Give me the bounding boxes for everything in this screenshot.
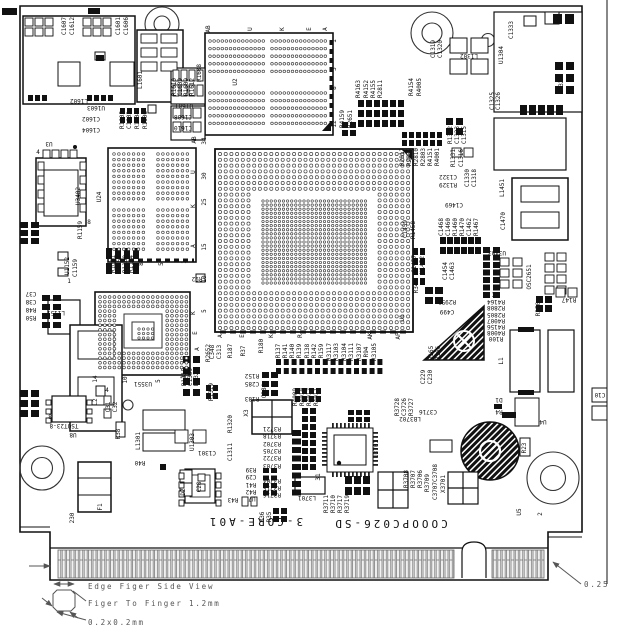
bga-ball <box>352 220 354 222</box>
bga-ball <box>295 212 297 214</box>
bga-ball <box>230 268 233 271</box>
bga-ball <box>181 248 184 251</box>
bga-ball <box>224 321 227 324</box>
bga-ball <box>275 122 278 125</box>
bga-ball <box>407 251 410 254</box>
bga-ball <box>258 47 261 50</box>
bga-ball <box>378 176 381 179</box>
bga-ball <box>348 241 350 243</box>
bga-ball <box>253 297 256 300</box>
pad <box>430 132 435 138</box>
bga-ball <box>307 278 309 280</box>
bga-ball <box>378 268 381 271</box>
bga-ball <box>338 187 341 190</box>
pad <box>292 456 301 462</box>
bga-ball <box>224 263 227 266</box>
bga-ball <box>321 297 324 300</box>
bga-ball <box>295 249 297 251</box>
bga-ball <box>185 305 188 308</box>
bga-ball <box>142 192 145 195</box>
bga-ball <box>151 300 154 303</box>
bga-ball <box>299 249 301 251</box>
bga-ball <box>295 261 297 263</box>
bga-ball <box>348 200 350 202</box>
ref-designator-label: R2953 <box>438 298 456 305</box>
bga-ball <box>127 300 130 303</box>
bga-ball <box>282 282 284 284</box>
bga-ball <box>344 245 346 247</box>
bga-ball <box>321 187 324 190</box>
ref-designator-label: L1 <box>498 357 505 365</box>
bga-ball <box>224 239 227 242</box>
bga-ball <box>161 366 164 369</box>
bga-ball <box>137 220 140 223</box>
ref-designator-label: R3111 <box>348 343 355 361</box>
ref-designator-label: R2810 <box>413 148 420 166</box>
bga-ball <box>118 186 121 189</box>
bga-ball <box>291 261 293 263</box>
bga-ball <box>407 187 410 190</box>
bga-ball <box>287 55 290 58</box>
bga-ball <box>181 158 184 161</box>
bga-ball <box>395 286 398 289</box>
bga-ball <box>323 212 325 214</box>
ref-designator-label: TSOT23-8 <box>49 422 78 429</box>
bga-ball <box>275 47 278 50</box>
bga-ball <box>291 63 294 66</box>
bga-ball <box>364 224 366 226</box>
bga-ball <box>241 315 244 318</box>
pad <box>483 292 490 298</box>
bga-ball <box>407 309 410 312</box>
ref-designator-label: C28 <box>196 481 203 492</box>
bga-ball <box>262 257 264 259</box>
bga-ball <box>384 257 387 260</box>
bga-ball <box>186 181 189 184</box>
bga-ball <box>360 265 362 267</box>
bga-ball <box>344 303 347 306</box>
ref-designator-label: R2808 <box>487 304 505 311</box>
bga-ball <box>157 198 160 201</box>
bga-ball <box>253 326 256 329</box>
bga-ball <box>275 187 278 190</box>
bga-ball <box>99 310 102 313</box>
pad <box>468 237 474 244</box>
bga-ball <box>336 261 338 263</box>
bga-ball <box>355 309 358 312</box>
bga-ball <box>378 257 381 260</box>
bga-ball <box>236 303 239 306</box>
bga-ball <box>147 300 150 303</box>
bga-ball <box>275 309 278 312</box>
bga-ball <box>246 99 249 102</box>
bga-ball <box>323 229 325 231</box>
bga-ball <box>262 55 265 58</box>
bga-ball <box>181 153 184 156</box>
bga-ball <box>213 55 216 58</box>
bga-ball <box>241 251 244 254</box>
bga-ball <box>389 176 392 179</box>
bga-ball <box>315 297 318 300</box>
ref-designator-label: R34 <box>413 282 420 293</box>
bga-ball <box>181 226 184 229</box>
bga-ball <box>401 199 404 202</box>
bga-ball <box>186 158 189 161</box>
bga-ball <box>364 237 366 239</box>
pad <box>276 368 281 374</box>
bga-ball <box>127 198 130 201</box>
bga-ball <box>350 181 353 184</box>
bga-ball <box>270 274 272 276</box>
bga-ball <box>298 164 301 167</box>
bga-ball <box>230 199 233 202</box>
ref-designator-label: 34 <box>201 137 208 145</box>
bga-ball <box>218 205 221 208</box>
bga-ball <box>356 282 358 284</box>
bga-ball <box>319 278 321 280</box>
bga-ball <box>230 152 233 155</box>
bga-ball <box>176 192 179 195</box>
bga-ball <box>266 208 268 210</box>
bga-ball <box>246 47 249 50</box>
bga-ball <box>332 176 335 179</box>
ref-designator-label: R1612 <box>189 78 196 96</box>
bga-ball <box>350 309 353 312</box>
bga-ball <box>113 153 116 156</box>
bga-ball <box>360 282 362 284</box>
bga-ball <box>299 237 301 239</box>
bga-ball <box>395 257 398 260</box>
bga-ball <box>315 229 317 231</box>
bga-ball <box>355 187 358 190</box>
bga-ball <box>270 292 273 295</box>
bga-ball <box>327 200 329 202</box>
bga-ball <box>401 216 404 219</box>
bga-ball <box>340 261 342 263</box>
bga-ball <box>278 253 280 255</box>
ref-designator-label: U5 <box>516 508 523 516</box>
bga-ball <box>237 122 240 125</box>
bga-ball <box>258 92 261 95</box>
bga-ball <box>356 200 358 202</box>
bga-ball <box>401 280 404 283</box>
bga-ball <box>118 366 121 369</box>
bga-ball <box>237 92 240 95</box>
bga-ball <box>247 205 250 208</box>
bga-ball <box>230 205 233 208</box>
bga-ball <box>348 233 350 235</box>
ref-designator-label: C31 <box>105 401 112 412</box>
bga-ball <box>171 164 174 167</box>
bga-ball <box>407 297 410 300</box>
bga-ball <box>270 152 273 155</box>
bga-ball <box>230 181 233 184</box>
bga-ball <box>327 297 330 300</box>
bga-ball <box>407 326 410 329</box>
bga-ball <box>229 55 232 58</box>
bga-ball <box>118 305 121 308</box>
bga-ball <box>286 220 288 222</box>
pad <box>420 248 425 255</box>
bga-ball <box>364 245 366 247</box>
bga-ball <box>230 170 233 173</box>
bga-ball <box>372 326 375 329</box>
bga-ball <box>266 278 268 280</box>
bga-ball <box>395 297 398 300</box>
bga-ball <box>295 274 297 276</box>
bga-ball <box>264 309 267 312</box>
bga-ball <box>224 187 227 190</box>
bga-ball <box>291 224 293 226</box>
pad <box>342 130 348 136</box>
bga-ball <box>137 352 140 355</box>
pad <box>545 305 552 312</box>
pad <box>374 110 380 117</box>
ref-designator-label: AB <box>191 136 198 144</box>
bga-ball <box>323 253 325 255</box>
pad <box>31 222 39 228</box>
bga-ball <box>389 263 392 266</box>
bga-ball <box>407 257 410 260</box>
bga-ball <box>162 214 165 217</box>
bga-ball <box>270 245 272 247</box>
pad <box>310 432 316 438</box>
ref-designator-label: 10 <box>201 275 208 283</box>
bga-ball <box>247 158 250 161</box>
ref-designator-label: C1463 <box>449 262 456 280</box>
pad <box>315 368 320 374</box>
bga-ball <box>338 321 341 324</box>
bga-ball <box>287 152 290 155</box>
bga-ball <box>99 343 102 346</box>
bga-ball <box>258 187 261 190</box>
ref-designator-label: C285 <box>244 380 259 387</box>
bga-ball <box>176 237 179 240</box>
bga-ball <box>323 208 325 210</box>
bga-ball <box>304 170 307 173</box>
bga-ball <box>304 122 307 125</box>
bga-ball <box>233 107 236 110</box>
bga-ball <box>303 220 305 222</box>
bga-ball <box>118 198 121 201</box>
ref-designator-label: R3722 <box>263 454 281 461</box>
bga-ball <box>327 208 329 210</box>
bga-ball <box>147 352 150 355</box>
bga-ball <box>250 63 253 66</box>
bga-u3551-center-square <box>124 314 162 348</box>
ref-designator-label: C1607 <box>61 17 68 35</box>
bga-ball <box>241 199 244 202</box>
bga-ball <box>286 208 288 210</box>
bga-ball <box>186 192 189 195</box>
bga-ball <box>258 158 261 161</box>
bga-ball <box>291 245 293 247</box>
bga-ball <box>298 181 301 184</box>
bga-ball <box>224 199 227 202</box>
bga-ball <box>348 220 350 222</box>
bga-ball <box>324 55 327 58</box>
bga-ball <box>291 282 293 284</box>
bga-ball <box>166 324 169 327</box>
bga-ball <box>364 265 366 267</box>
bga-ball <box>132 198 135 201</box>
bga-ball <box>320 107 323 110</box>
pad <box>374 100 380 107</box>
ref-designator-label: 14 <box>92 375 99 383</box>
bga-ball <box>308 47 311 50</box>
bga-ball <box>175 305 178 308</box>
bga-ball <box>221 122 224 125</box>
bga-ball <box>262 245 264 247</box>
bga-ball <box>348 212 350 214</box>
bga-ball <box>218 309 221 312</box>
bga-ball <box>378 164 381 167</box>
bga-ball <box>218 239 221 242</box>
bga-ball <box>316 70 319 73</box>
pad <box>38 162 44 170</box>
pad <box>292 368 297 374</box>
bga-ball <box>283 92 286 95</box>
bga-ball <box>295 270 297 272</box>
bga-ball <box>282 270 284 272</box>
bga-ball <box>303 253 305 255</box>
bga-ball <box>291 99 294 102</box>
bga-ball <box>315 309 318 312</box>
bga-ball <box>356 261 358 263</box>
bga-ball <box>180 352 183 355</box>
bga-ball <box>324 70 327 73</box>
bga-ball <box>127 248 130 251</box>
ref-designator-label: R1458 <box>410 221 417 239</box>
bga-ball <box>367 303 370 306</box>
bga-ball <box>171 343 174 346</box>
bga-ball <box>270 265 272 267</box>
bga-ball <box>108 310 111 313</box>
bga-ball <box>241 205 244 208</box>
ref-designator-label: R39 <box>245 466 256 473</box>
bga-ball <box>242 70 245 73</box>
ref-designator-label: R142 <box>311 343 318 358</box>
ref-designator-label: C1316 <box>458 149 465 167</box>
bga-ball <box>262 99 265 102</box>
bga-ball <box>367 152 370 155</box>
bga-ball <box>352 245 354 247</box>
bga-ball <box>137 300 140 303</box>
bga-ball <box>311 237 313 239</box>
bga-ball <box>367 321 370 324</box>
pad <box>101 95 106 101</box>
pad <box>96 55 104 61</box>
bga-ball <box>299 245 301 247</box>
bga-ball <box>407 199 410 202</box>
bga-ball <box>340 233 342 235</box>
bga-ball <box>352 200 354 202</box>
ref-designator-label: C3716 <box>419 408 437 415</box>
bga-ball <box>291 220 293 222</box>
bga-ball <box>142 361 145 364</box>
bga-ball <box>384 170 387 173</box>
bga-ball <box>147 328 149 330</box>
bga-ball <box>171 333 174 336</box>
bga-ball <box>336 274 338 276</box>
bga-ball <box>319 208 321 210</box>
bga-ball <box>180 305 183 308</box>
bga-ball <box>166 300 169 303</box>
ref-designator-label: K <box>190 311 197 315</box>
component-body <box>592 406 607 420</box>
bga-ball <box>327 265 329 267</box>
bga-ball <box>218 245 221 248</box>
bga-ball <box>186 214 189 217</box>
pad <box>454 247 460 254</box>
ref-designator-label: U3701 <box>373 440 380 458</box>
bga-ball <box>361 176 364 179</box>
bga-ball <box>209 47 212 50</box>
bga-ball <box>384 309 387 312</box>
bga-ball <box>247 187 250 190</box>
ref-designator-label: C230 <box>427 369 434 384</box>
bga-ball <box>229 63 232 66</box>
bga-ball <box>303 224 305 226</box>
bga-ball <box>323 200 325 202</box>
pad <box>502 412 516 418</box>
bga-ball <box>127 237 130 240</box>
bga-ball <box>395 326 398 329</box>
bga-ball <box>320 122 323 125</box>
pad <box>545 286 554 294</box>
ref-designator-label: 5 <box>331 67 338 71</box>
pad <box>364 417 370 422</box>
bga-ball <box>356 216 358 218</box>
bga-ball <box>311 245 313 247</box>
bga-ball <box>315 303 318 306</box>
bga-ball <box>171 186 174 189</box>
bga-ball <box>137 175 140 178</box>
ref-designator-label: R1608 <box>196 64 203 82</box>
bga-ball <box>348 229 350 231</box>
ref-designator-label: R1332 <box>447 126 454 144</box>
ref-designator-label: R3105 <box>371 343 378 361</box>
bga-ball <box>247 170 250 173</box>
ref-designator-label: R42 <box>245 488 256 495</box>
bga-ball <box>137 164 140 167</box>
bga-ball <box>264 321 267 324</box>
bga-ball <box>281 326 284 329</box>
bga-ball <box>291 278 293 280</box>
component-body <box>524 16 536 26</box>
bga-ball <box>278 241 280 243</box>
bga-ball <box>247 193 250 196</box>
bga-ball <box>118 181 121 184</box>
pad <box>363 487 370 495</box>
bga-ball <box>315 216 317 218</box>
bga-ball <box>401 274 404 277</box>
pad <box>315 359 320 365</box>
bga-ball <box>113 296 116 299</box>
bga-ball <box>324 47 327 50</box>
ref-designator-label: R2811 <box>377 80 384 98</box>
bga-ball <box>176 198 179 201</box>
ref-designator-label: R147 <box>561 296 576 303</box>
bga-ball <box>142 226 145 229</box>
bga-ball <box>319 265 321 267</box>
bga-ball <box>233 92 236 95</box>
bga-ball <box>185 300 188 303</box>
bga-ball <box>311 200 313 202</box>
bga-ball <box>108 366 111 369</box>
bga-ball <box>213 63 216 66</box>
bga-ball <box>299 224 301 226</box>
